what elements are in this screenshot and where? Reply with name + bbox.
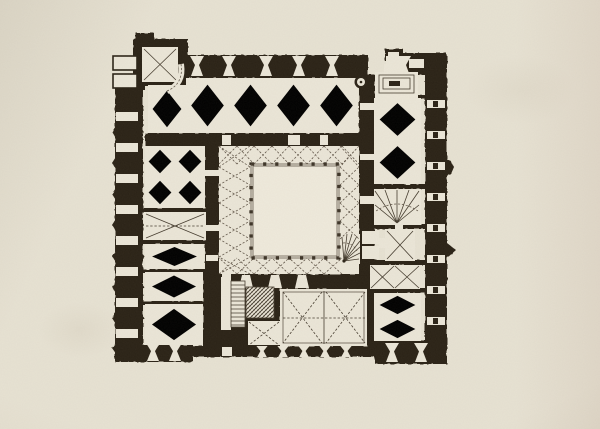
floor-plan-engraving <box>0 0 600 429</box>
paper-grain <box>0 0 600 429</box>
paper-background <box>0 0 600 429</box>
